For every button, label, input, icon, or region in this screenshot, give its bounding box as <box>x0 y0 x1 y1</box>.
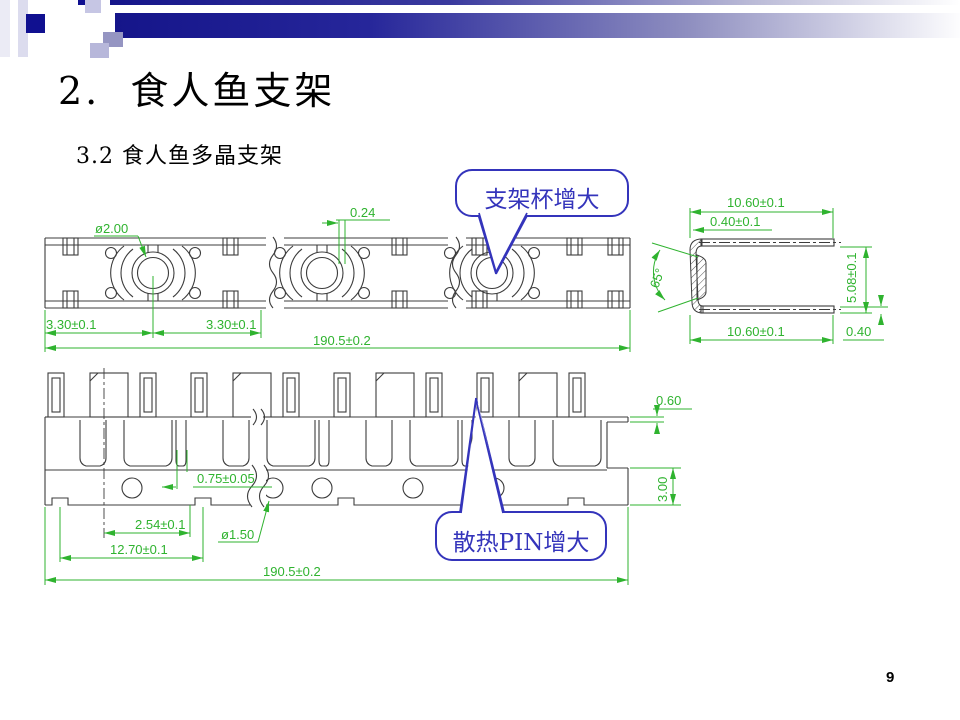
callout-pin-label: 散热PIN增大 <box>453 530 590 556</box>
technical-drawing: ø2.00 0.24 3.30±0.1 3.30±0.1 190.5±0.2 <box>0 0 960 720</box>
dim-overall-length-front: 190.5±0.2 <box>263 564 321 579</box>
dim-overall-length: 190.5±0.2 <box>313 333 371 348</box>
callout-cup-label: 支架杯增大 <box>485 187 600 213</box>
break-mark <box>270 237 277 308</box>
dim-thickness-top: 0.40±0.1 <box>710 214 761 229</box>
dim-unit-pitch: 12.70±0.1 <box>110 542 168 557</box>
top-view: ø2.00 0.24 3.30±0.1 3.30±0.1 190.5±0.2 <box>45 205 630 352</box>
dim-width-bottom: 10.60±0.1 <box>727 324 785 339</box>
dim-hole-diameter: ø2.00 <box>95 221 128 236</box>
dim-rail-height: 3.00 <box>655 477 670 502</box>
side-view-dimensions: 10.60±0.1 0.40±0.1 65° 5.08±0.1 10.60±0.… <box>647 195 888 344</box>
side-view: 10.60±0.1 0.40±0.1 65° 5.08±0.1 10.60±0.… <box>647 195 888 344</box>
dim-tab-thickness: 0.60 <box>656 393 681 408</box>
dim-hole-diameter-front: ø1.50 <box>221 527 254 542</box>
top-view-strip <box>45 237 630 308</box>
dim-pitch-left: 3.30±0.1 <box>46 317 97 332</box>
side-view-section <box>690 239 841 313</box>
dim-pitch-right: 3.30±0.1 <box>206 317 257 332</box>
dim-thickness-bottom: 0.40 <box>846 324 871 339</box>
slide: 2. 食人鱼支架 3.2 食人鱼多晶支架 <box>0 0 960 720</box>
dim-height: 5.08±0.1 <box>844 252 859 303</box>
dim-pin-pitch: 2.54±0.1 <box>135 517 186 532</box>
dim-width-top: 10.60±0.1 <box>727 195 785 210</box>
dim-gap: 0.24 <box>350 205 375 220</box>
page-number: 9 <box>886 669 894 686</box>
callout-cup: 支架杯增大 <box>456 170 628 274</box>
dim-cup-angle: 65° <box>647 266 668 290</box>
dim-slot: 0.75±0.05 <box>197 471 255 486</box>
